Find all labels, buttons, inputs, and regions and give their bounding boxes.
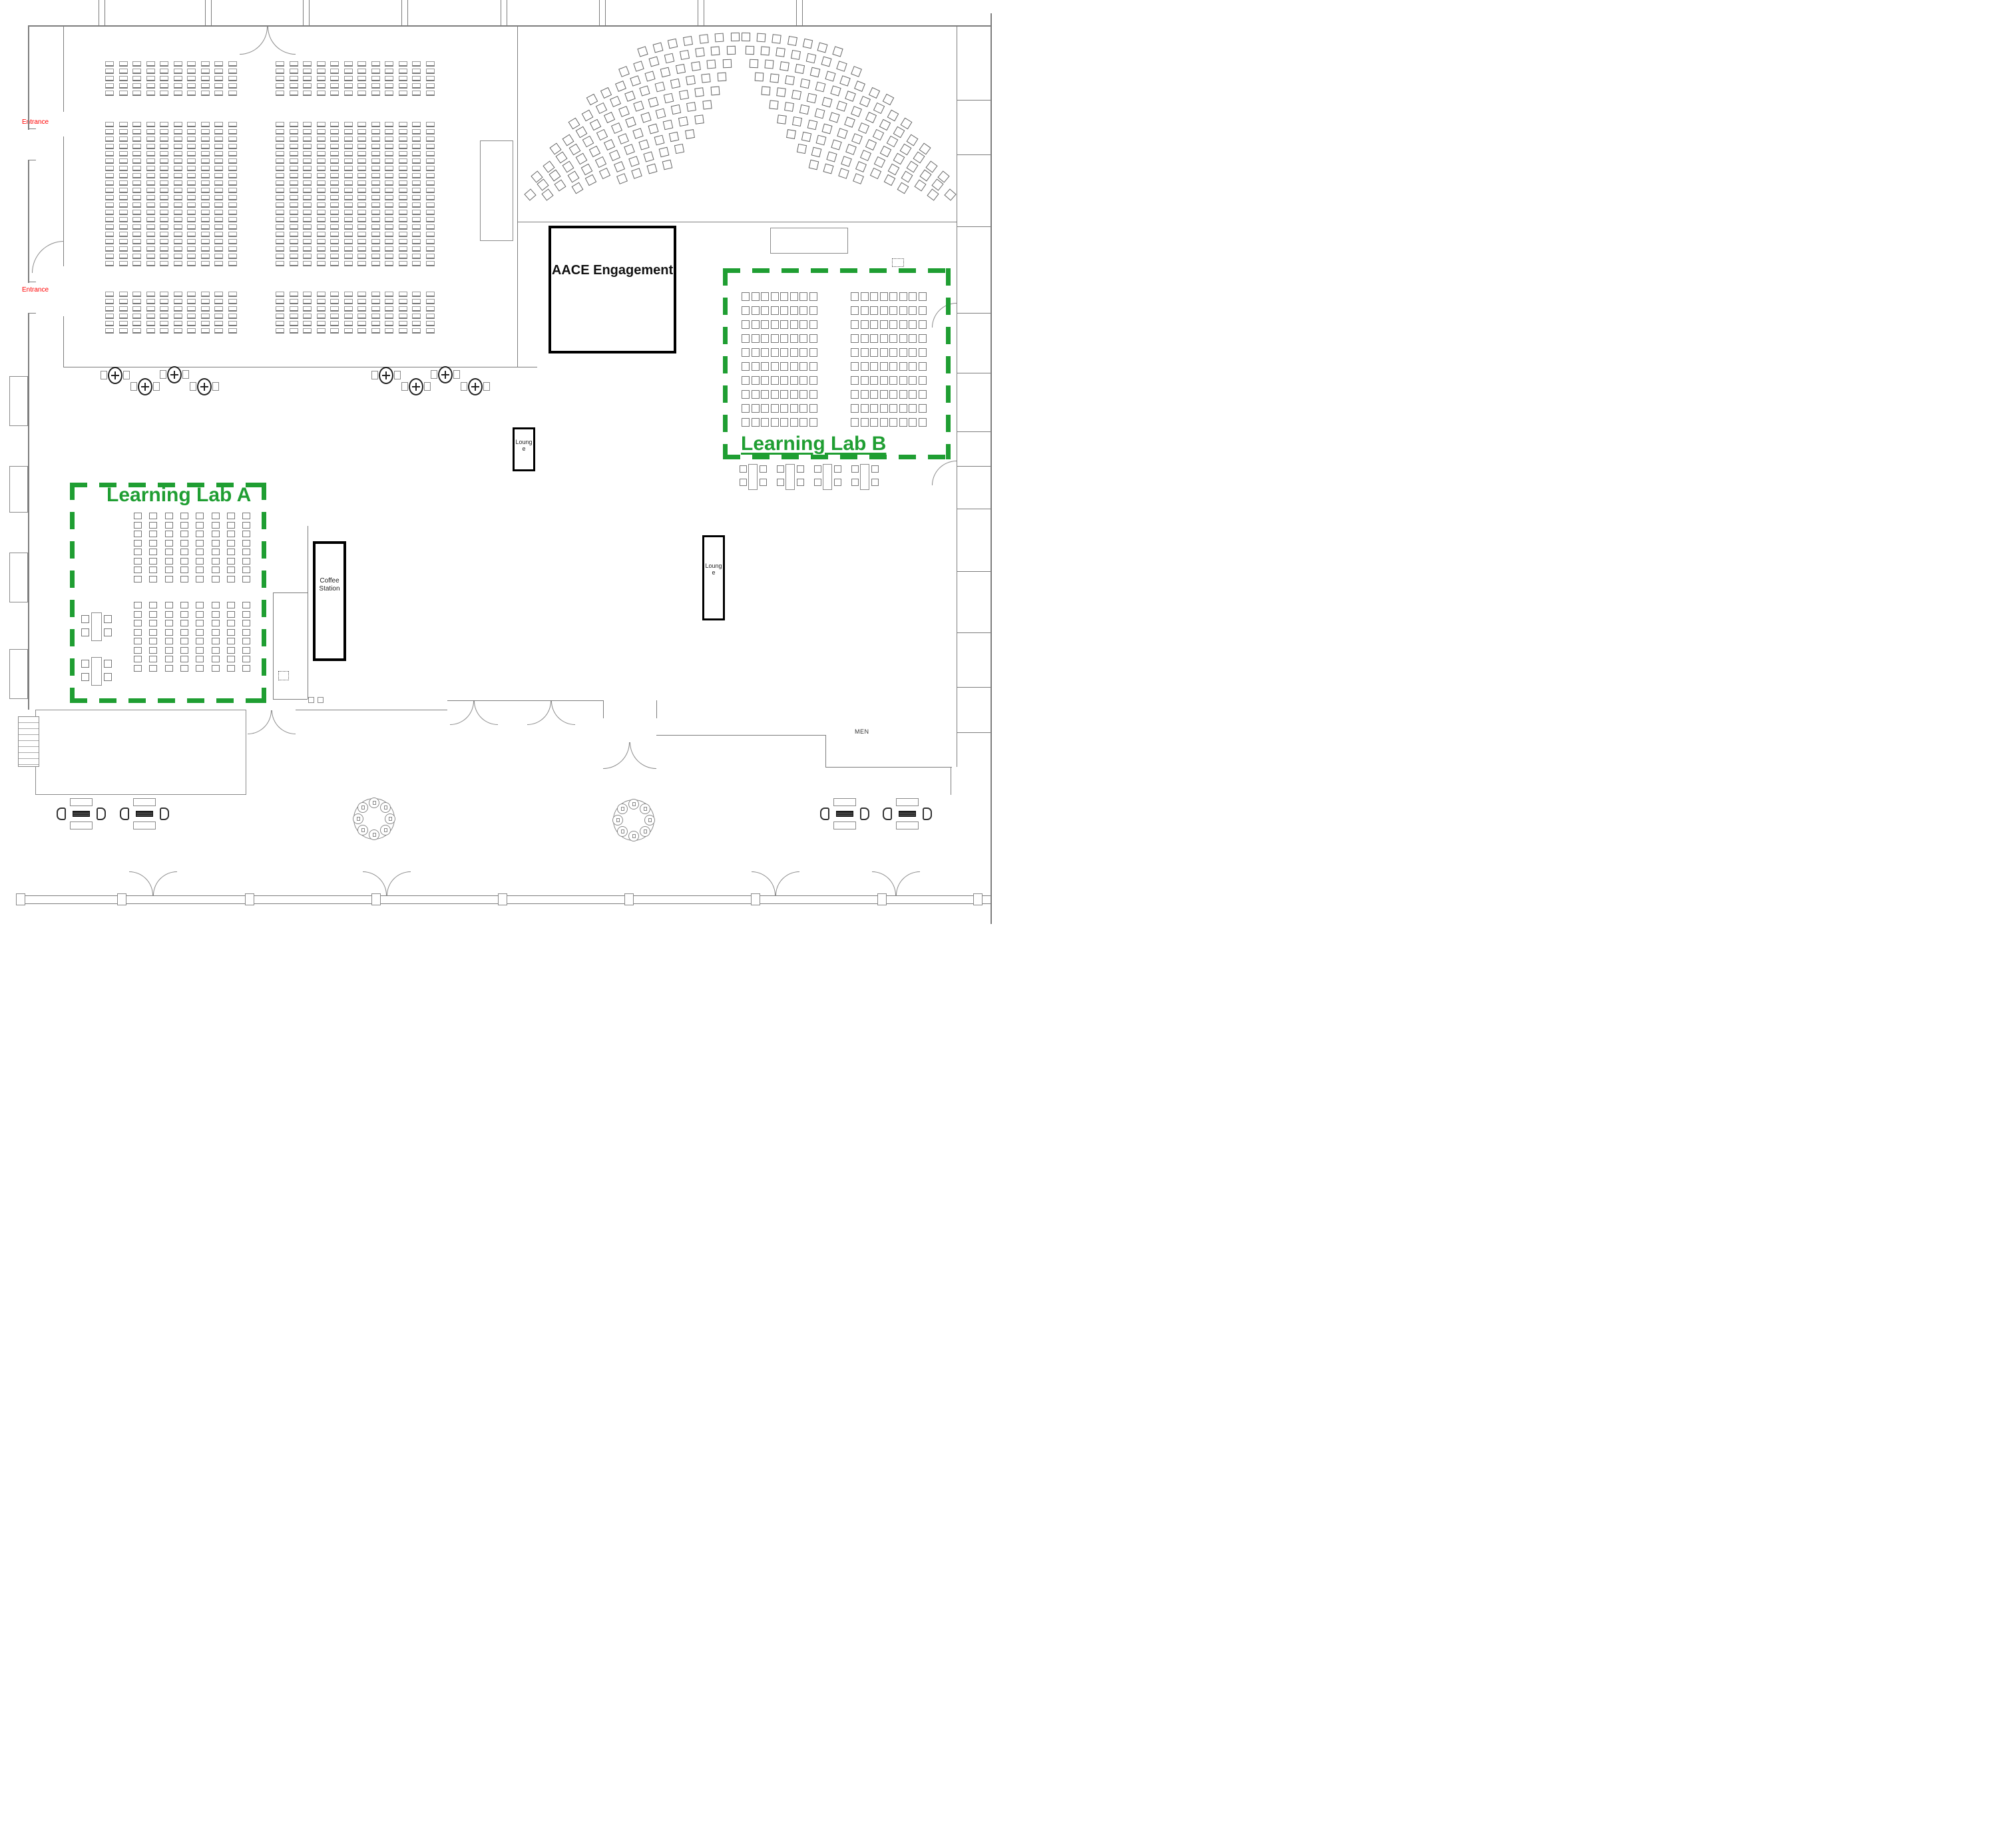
wall-stub	[211, 0, 212, 25]
theater-chair	[830, 85, 841, 96]
lounge-2-label: Lounge	[704, 563, 723, 577]
seat	[426, 210, 435, 215]
seat	[880, 348, 888, 357]
theater-chair	[873, 129, 884, 140]
seat	[174, 180, 182, 186]
seat	[809, 404, 817, 413]
seat	[742, 418, 750, 427]
theater-chair	[897, 182, 909, 194]
seat	[160, 166, 168, 171]
seat	[132, 292, 141, 297]
seat	[371, 76, 380, 81]
seat	[790, 404, 798, 413]
seat	[399, 224, 407, 230]
consult-chair	[851, 465, 859, 473]
theater-chair	[801, 132, 811, 142]
seat	[160, 217, 168, 222]
seat	[187, 328, 196, 334]
seat	[357, 299, 366, 304]
wall-stub	[957, 313, 991, 314]
seat	[412, 144, 421, 149]
seat	[799, 376, 807, 385]
seat	[201, 261, 210, 266]
seat	[303, 246, 312, 252]
learning-lab-b-border-top	[723, 268, 951, 273]
seat	[344, 314, 353, 319]
stairs	[18, 716, 39, 767]
wall-segment	[28, 25, 29, 130]
seat	[790, 390, 798, 399]
theater-chair	[670, 79, 680, 89]
seat	[146, 202, 155, 208]
seat	[344, 129, 353, 134]
lab-a-table-chair	[104, 615, 112, 623]
seat	[426, 232, 435, 237]
wall-niche	[9, 466, 28, 513]
seat	[119, 246, 128, 252]
seat	[228, 306, 237, 312]
seat	[809, 306, 817, 315]
seat	[771, 362, 779, 371]
seat	[344, 321, 353, 326]
wall-pier	[16, 893, 25, 905]
seat	[201, 188, 210, 193]
seat	[290, 158, 298, 164]
theater-chair	[723, 59, 732, 69]
seat	[276, 188, 284, 193]
seat	[385, 254, 393, 259]
seat	[212, 629, 220, 636]
seat	[146, 321, 155, 326]
seat	[196, 638, 204, 644]
seat	[303, 261, 312, 266]
wall-segment	[656, 700, 657, 718]
wall-stub	[704, 0, 704, 25]
seat	[344, 195, 353, 200]
seat	[149, 513, 157, 519]
lounge-table	[833, 798, 856, 806]
seat	[771, 376, 779, 385]
seat	[180, 558, 188, 565]
seat	[771, 404, 779, 413]
theater-chair	[795, 64, 805, 74]
theater-chair	[648, 123, 658, 134]
theater-chair	[791, 90, 801, 100]
place-setting	[621, 807, 624, 811]
seat	[303, 202, 312, 208]
theater-chair	[625, 116, 636, 128]
seat	[290, 306, 298, 312]
seat	[861, 306, 869, 315]
seat	[146, 210, 155, 215]
seat	[174, 314, 182, 319]
seat	[105, 76, 114, 81]
seat	[371, 314, 380, 319]
seat	[228, 239, 237, 244]
seat	[303, 195, 312, 200]
theater-chair	[869, 87, 880, 99]
theater-chair	[662, 160, 673, 170]
wall-stub	[698, 0, 698, 25]
seat	[187, 239, 196, 244]
seat	[228, 202, 237, 208]
consult-chair	[740, 465, 747, 473]
seat	[228, 173, 237, 178]
seat	[330, 195, 339, 200]
seat	[303, 76, 312, 81]
seat	[412, 306, 421, 312]
seat	[134, 629, 142, 636]
seat	[160, 232, 168, 237]
seat	[303, 69, 312, 74]
seat	[212, 638, 220, 644]
seat	[119, 202, 128, 208]
seat	[276, 232, 284, 237]
seat	[174, 261, 182, 266]
theater-chair	[596, 103, 607, 114]
seat	[214, 173, 223, 178]
seat	[201, 299, 210, 304]
seat	[399, 321, 407, 326]
seat	[761, 320, 769, 329]
seat	[160, 69, 168, 74]
seat	[134, 531, 142, 537]
theater-chair	[851, 106, 862, 117]
seat	[228, 195, 237, 200]
theater-chair	[660, 67, 671, 78]
small-fixture	[308, 697, 314, 703]
seat	[212, 558, 220, 565]
seat	[212, 665, 220, 672]
door-swing-arc	[268, 27, 296, 55]
seat	[330, 144, 339, 149]
seat	[132, 224, 141, 230]
seat	[242, 576, 250, 582]
coffee-station-label: Coffee Station	[316, 577, 343, 593]
seat	[132, 136, 141, 142]
seat	[201, 217, 210, 222]
seat	[371, 202, 380, 208]
seat	[105, 151, 114, 156]
seat	[146, 122, 155, 127]
seat	[317, 173, 326, 178]
seat	[242, 620, 250, 626]
seat	[303, 83, 312, 89]
seat	[132, 76, 141, 81]
seat	[214, 195, 223, 200]
theater-chair	[596, 129, 608, 140]
seat	[851, 376, 859, 385]
theater-chair	[614, 161, 625, 172]
seat	[214, 328, 223, 334]
seat	[290, 195, 298, 200]
door-swing-arc	[932, 461, 957, 485]
seat	[160, 180, 168, 186]
seat	[771, 292, 779, 301]
cocktail-chair	[431, 370, 437, 379]
seat	[228, 321, 237, 326]
seat	[146, 232, 155, 237]
seat	[119, 136, 128, 142]
seat	[134, 567, 142, 573]
seat	[228, 136, 237, 142]
seat	[371, 136, 380, 142]
seat	[174, 328, 182, 334]
seat	[317, 328, 326, 334]
seat	[276, 217, 284, 222]
theater-chair	[611, 122, 622, 134]
seat	[909, 348, 917, 357]
seat	[344, 254, 353, 259]
seat	[174, 292, 182, 297]
seat	[385, 299, 393, 304]
seat	[160, 61, 168, 67]
seat	[412, 122, 421, 127]
seat	[330, 321, 339, 326]
consult-chair	[797, 465, 804, 473]
seat	[187, 217, 196, 222]
seat	[880, 320, 888, 329]
seat	[149, 576, 157, 582]
seat	[919, 390, 927, 399]
seat	[160, 151, 168, 156]
seat	[119, 76, 128, 81]
theater-chair	[595, 156, 606, 168]
seat	[357, 328, 366, 334]
seat	[385, 246, 393, 252]
door-swing-arc	[776, 871, 799, 895]
seat	[909, 306, 917, 315]
seat	[357, 239, 366, 244]
seat	[799, 292, 807, 301]
seat	[357, 292, 366, 297]
seat	[761, 376, 769, 385]
seat	[187, 210, 196, 215]
seat	[357, 180, 366, 186]
seat	[132, 202, 141, 208]
place-setting	[389, 817, 392, 821]
seat	[132, 158, 141, 164]
seat	[165, 549, 173, 555]
seat	[242, 647, 250, 654]
seat	[119, 151, 128, 156]
seat	[187, 151, 196, 156]
seat	[357, 224, 366, 230]
seat	[119, 166, 128, 171]
seat	[276, 292, 284, 297]
seat	[889, 390, 897, 399]
seat	[385, 232, 393, 237]
lounge-1-label: Lounge	[515, 439, 533, 453]
seat	[426, 261, 435, 266]
seat	[160, 210, 168, 215]
seat	[187, 129, 196, 134]
seat	[357, 306, 366, 312]
seat	[412, 129, 421, 134]
door-swing-arc	[551, 701, 575, 725]
seat	[303, 91, 312, 96]
aace-engagement-room: AACE Engagement	[549, 226, 676, 353]
theater-chair	[691, 61, 701, 71]
seat	[742, 306, 750, 315]
theater-chair	[944, 188, 956, 200]
seat	[201, 144, 210, 149]
seat	[399, 188, 407, 193]
place-setting	[632, 834, 636, 838]
seat	[426, 91, 435, 96]
cocktail-chair	[394, 371, 401, 379]
seat	[290, 292, 298, 297]
seat	[385, 76, 393, 81]
seat	[371, 306, 380, 312]
theater-chair	[624, 91, 636, 102]
seat	[201, 61, 210, 67]
seat	[160, 292, 168, 297]
seat	[212, 576, 220, 582]
cocktail-chair	[483, 382, 490, 391]
seat	[146, 306, 155, 312]
seat	[344, 202, 353, 208]
seat	[303, 321, 312, 326]
cocktail-chair	[130, 382, 137, 391]
seat	[330, 136, 339, 142]
seat	[187, 224, 196, 230]
place-setting	[648, 818, 652, 822]
seat	[851, 362, 859, 371]
seat	[870, 418, 878, 427]
seat	[771, 334, 779, 343]
seat	[303, 314, 312, 319]
seat	[909, 418, 917, 427]
seat	[276, 246, 284, 252]
place-setting	[384, 828, 387, 832]
seat	[357, 173, 366, 178]
wall-segment	[296, 710, 447, 710]
seat	[426, 180, 435, 186]
seat	[214, 166, 223, 171]
learning-lab-a-border-bottom	[70, 698, 266, 703]
seat	[174, 83, 182, 89]
seat	[228, 299, 237, 304]
theater-chair	[815, 82, 826, 93]
seat	[919, 404, 927, 413]
seat	[201, 180, 210, 186]
seat	[399, 195, 407, 200]
wall-stub	[957, 571, 991, 572]
seat	[752, 404, 760, 413]
theater-chair	[604, 112, 615, 123]
seat	[371, 166, 380, 171]
seat	[317, 83, 326, 89]
learning-lab-a-label: Learning Lab A	[107, 484, 251, 507]
seat	[187, 83, 196, 89]
seat	[180, 611, 188, 618]
theater-chair	[888, 164, 900, 176]
seat	[276, 83, 284, 89]
consult-chair	[871, 479, 879, 486]
seat	[276, 261, 284, 266]
seat	[196, 513, 204, 519]
seat	[752, 334, 760, 343]
seat	[228, 122, 237, 127]
seat	[344, 151, 353, 156]
seat	[426, 314, 435, 319]
wall-niche	[9, 553, 28, 602]
consult-chair	[834, 479, 841, 486]
seat	[160, 144, 168, 149]
seat	[399, 306, 407, 312]
seat	[303, 61, 312, 67]
seat	[412, 328, 421, 334]
seat	[371, 254, 380, 259]
seat	[290, 136, 298, 142]
seat	[242, 567, 250, 573]
theater-chair	[572, 182, 584, 194]
seat	[303, 144, 312, 149]
door-swing-arc	[896, 871, 920, 895]
seat	[201, 69, 210, 74]
seat	[317, 195, 326, 200]
seat	[330, 292, 339, 297]
seat	[201, 158, 210, 164]
seat	[780, 334, 788, 343]
seat	[909, 334, 917, 343]
consult-table	[860, 464, 869, 490]
seat	[174, 246, 182, 252]
seat	[146, 224, 155, 230]
seat	[119, 299, 128, 304]
cocktail-table	[468, 378, 483, 395]
seat	[105, 166, 114, 171]
theater-chair	[638, 139, 649, 150]
seat	[119, 69, 128, 74]
seat	[317, 210, 326, 215]
seat	[174, 217, 182, 222]
seat	[214, 129, 223, 134]
seat	[344, 306, 353, 312]
seat	[889, 292, 897, 301]
seat	[761, 306, 769, 315]
seat	[317, 299, 326, 304]
seat	[385, 158, 393, 164]
seat	[165, 522, 173, 529]
theater-chair	[865, 112, 877, 123]
seat	[119, 239, 128, 244]
lounge-table	[896, 798, 919, 806]
seat	[344, 261, 353, 266]
seat	[371, 69, 380, 74]
seat	[214, 91, 223, 96]
consult-chair	[777, 465, 784, 473]
wall-stub	[99, 0, 99, 25]
seat	[149, 629, 157, 636]
seat	[290, 321, 298, 326]
seat	[201, 136, 210, 142]
seat	[909, 362, 917, 371]
seat	[149, 656, 157, 662]
seat	[214, 158, 223, 164]
seat	[174, 202, 182, 208]
seat	[317, 314, 326, 319]
seat	[330, 306, 339, 312]
wall-segment	[273, 699, 308, 700]
seat	[317, 158, 326, 164]
seat	[105, 210, 114, 215]
theater-chair	[883, 94, 895, 106]
seat	[160, 202, 168, 208]
seat	[228, 254, 237, 259]
learning-lab-a-border-top	[70, 483, 266, 487]
